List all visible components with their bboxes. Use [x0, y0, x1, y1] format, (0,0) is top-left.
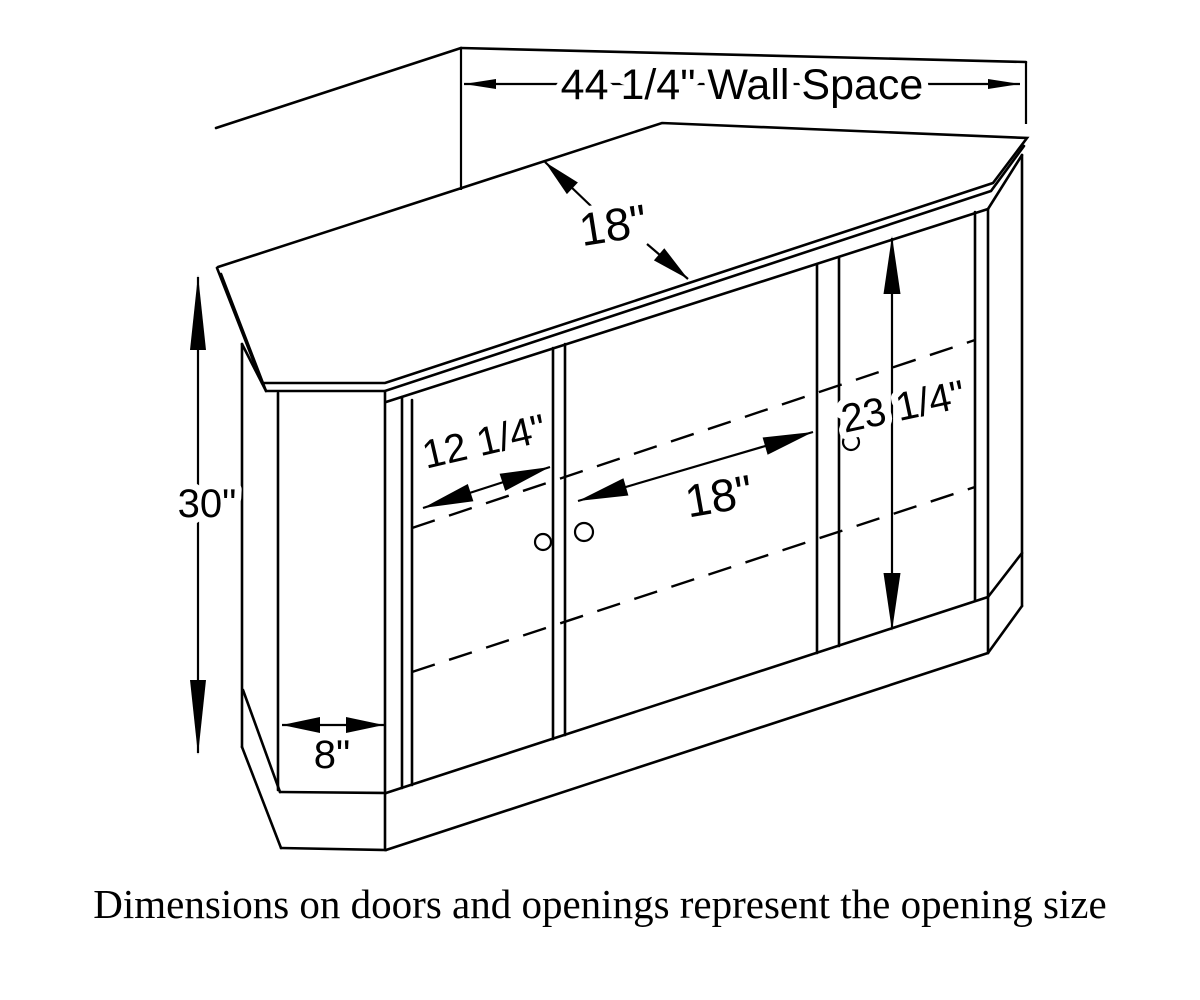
cabinet-top — [217, 123, 1027, 391]
left-door-dimension: 12 1/4" — [418, 406, 550, 508]
right-door-dimension: 23 1/4" — [837, 236, 969, 631]
right-door-label: 23 1/4" — [837, 372, 969, 441]
height-dimension: 30" — [178, 275, 237, 755]
center-opening-label: 18" — [681, 465, 757, 528]
wall-space-label: 44 1/4" Wall Space — [561, 61, 924, 109]
left-door-label: 12 1/4" — [418, 406, 550, 477]
center-door-knob — [575, 523, 593, 541]
corner-cabinet-diagram: 44 1/4" Wall Space 18" 30" 12 1/4" 18" 2… — [0, 0, 1200, 1000]
center-opening-dimension: 18" — [578, 432, 813, 527]
base-plinth — [386, 553, 1022, 850]
height-label: 30" — [178, 482, 237, 526]
top-depth-label: 18" — [576, 194, 651, 256]
side-panel-label: 8" — [314, 733, 350, 777]
side-panel-dimension: 8" — [282, 717, 384, 777]
left-door-knob — [535, 534, 551, 550]
wall-space-dimension: 44 1/4" Wall Space — [464, 61, 1020, 109]
top-depth-dimension: 18" — [545, 162, 688, 279]
caption-text: Dimensions on doors and openings represe… — [0, 880, 1200, 928]
cabinet-dimension-drawing: 44 1/4" Wall Space 18" 30" 12 1/4" 18" 2… — [0, 0, 1200, 1000]
